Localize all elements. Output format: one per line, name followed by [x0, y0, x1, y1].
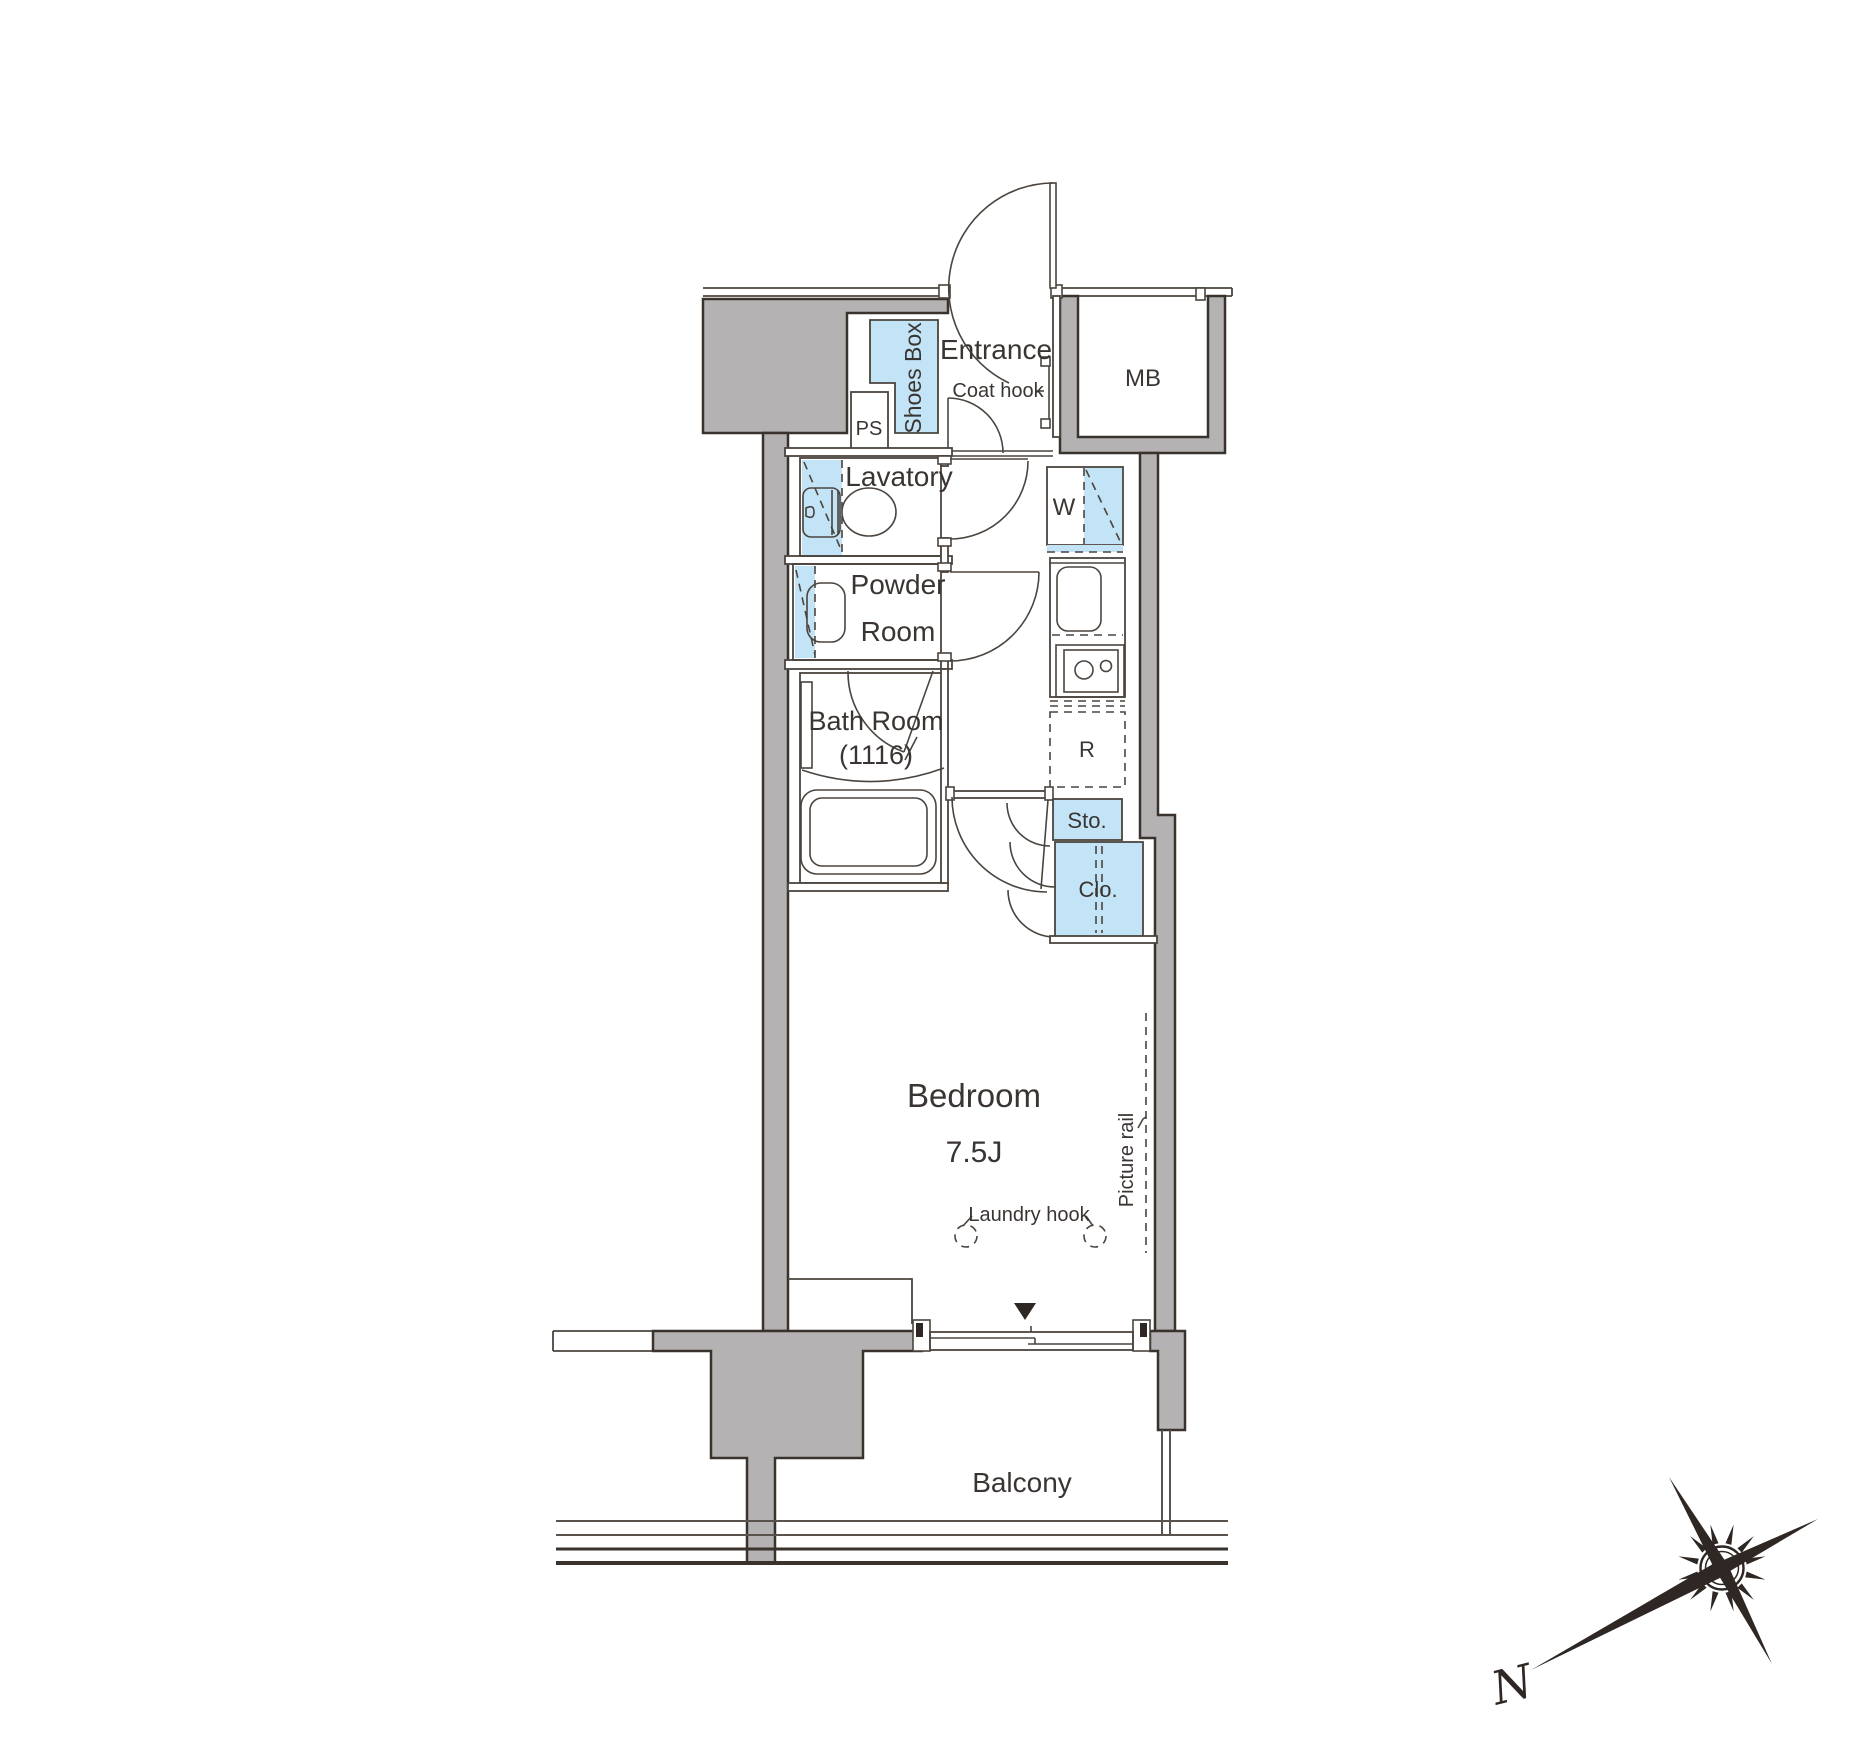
lavatory-label: Lavatory: [845, 461, 952, 492]
picture-rail: Picture rail: [1116, 1013, 1146, 1253]
washer-label: W: [1053, 494, 1076, 521]
wall-bottom-left: [653, 1331, 922, 1563]
coat-hook-label: Coat hook: [952, 380, 1044, 402]
kitchen: [1050, 558, 1125, 706]
compass-needle-north: [1531, 1561, 1726, 1670]
powder-door-swing-arc: [950, 572, 1039, 661]
lavatory: Lavatory: [785, 448, 1028, 564]
floor-plan-drawing: Entrance Coat hook MB Shoes Box PS: [0, 0, 1860, 1746]
bedroom: Bedroom 7.5J Laundry hook Picture rail: [788, 936, 1157, 1324]
lavatory-top-wall: [785, 448, 952, 456]
bath-right-wall: [941, 669, 948, 883]
hall-door-panel: [1041, 800, 1048, 889]
meter-box-label: MB: [1125, 365, 1161, 392]
lavatory-bottom-wall: [785, 556, 952, 564]
pipe-space-label: PS: [856, 418, 883, 440]
pipe-space: PS: [851, 392, 888, 450]
storage-door-swing-arc: [1007, 803, 1050, 846]
wall-bottom-right-block: [1150, 1331, 1185, 1430]
bath-room: Bath Room (1116): [788, 669, 948, 891]
compass-north-label: N: [1485, 1653, 1540, 1716]
storage-label: Sto.: [1067, 808, 1106, 833]
lavatory-door-swing-arc: [950, 461, 1028, 539]
bedroom-label: Bedroom: [907, 1077, 1041, 1114]
hall-wall: [946, 787, 1053, 892]
balcony-window: [913, 1320, 1150, 1351]
bedroom-top-wall: [1050, 936, 1157, 943]
meter-box: MB: [1125, 288, 1205, 392]
entrance-door-panel: [1050, 183, 1056, 288]
storage: Sto.: [1007, 799, 1122, 846]
closet-label: Clo.: [1078, 877, 1117, 902]
kitchen-sink-icon: [1057, 567, 1101, 631]
closet-door-swing-arc: [1008, 890, 1055, 937]
powder-bottom-wall: [785, 660, 952, 669]
bath-label-2: (1116): [839, 740, 913, 770]
hall-door-swing-arc: [952, 797, 1047, 892]
entrance-right-wall: [1053, 296, 1060, 437]
stove-icon: [1056, 645, 1124, 697]
balcony-label: Balcony: [972, 1467, 1072, 1498]
inner-door-swing-arc: [948, 398, 1003, 453]
entrance-label: Entrance: [940, 334, 1052, 365]
balcony: Balcony: [556, 1430, 1228, 1563]
powder-room: Powder Room: [785, 563, 1039, 669]
bath-bottom-wall: [788, 883, 948, 891]
bathtub-icon: [801, 790, 936, 874]
bath-label-1: Bath Room: [808, 706, 943, 736]
powder-label-1: Powder: [851, 569, 946, 600]
floor-plan: Entrance Coat hook MB Shoes Box PS: [0, 0, 1860, 1746]
picture-rail-label: Picture rail: [1116, 1113, 1138, 1207]
wall-left-strip: [763, 433, 788, 1331]
bedroom-size-label: 7.5J: [946, 1136, 1003, 1169]
closet-door-swing-arc: [1010, 842, 1055, 887]
washer-space: W: [1047, 467, 1123, 552]
laundry-hook: Laundry hook: [955, 1204, 1106, 1247]
refrigerator-space: R: [1050, 712, 1125, 787]
compass-rose-icon: N: [1485, 1477, 1818, 1716]
entry-marker-icon: [1014, 1303, 1036, 1320]
refrigerator-label: R: [1079, 737, 1095, 762]
laundry-hook-label: Laundry hook: [968, 1204, 1090, 1226]
shoes-box-label: Shoes Box: [900, 322, 926, 434]
powder-label-2: Room: [861, 616, 936, 647]
entrance-area: Entrance Coat hook: [939, 183, 1062, 456]
